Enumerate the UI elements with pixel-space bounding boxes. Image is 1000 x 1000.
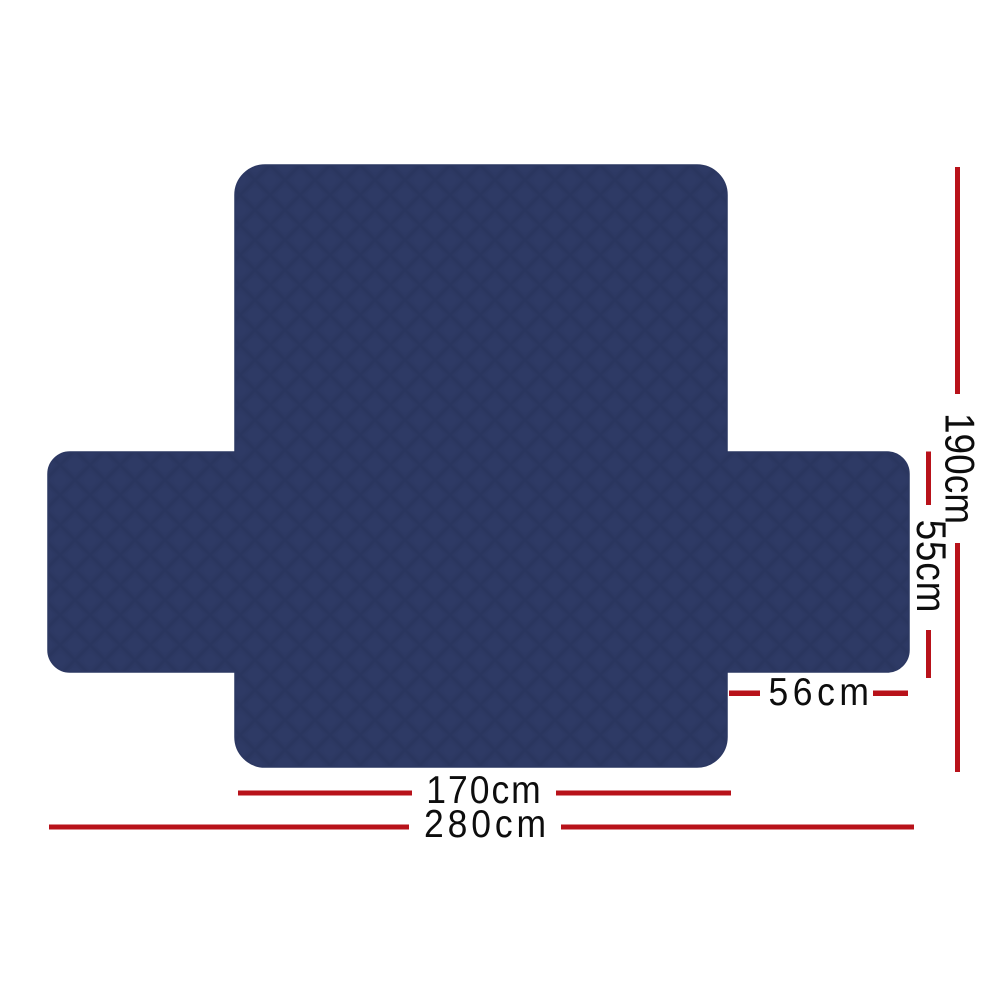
svg-text:190cm: 190cm [936, 413, 982, 524]
svg-text:280cm: 280cm [424, 801, 550, 845]
svg-text:56cm: 56cm [768, 669, 873, 713]
svg-text:55cm: 55cm [907, 520, 953, 614]
